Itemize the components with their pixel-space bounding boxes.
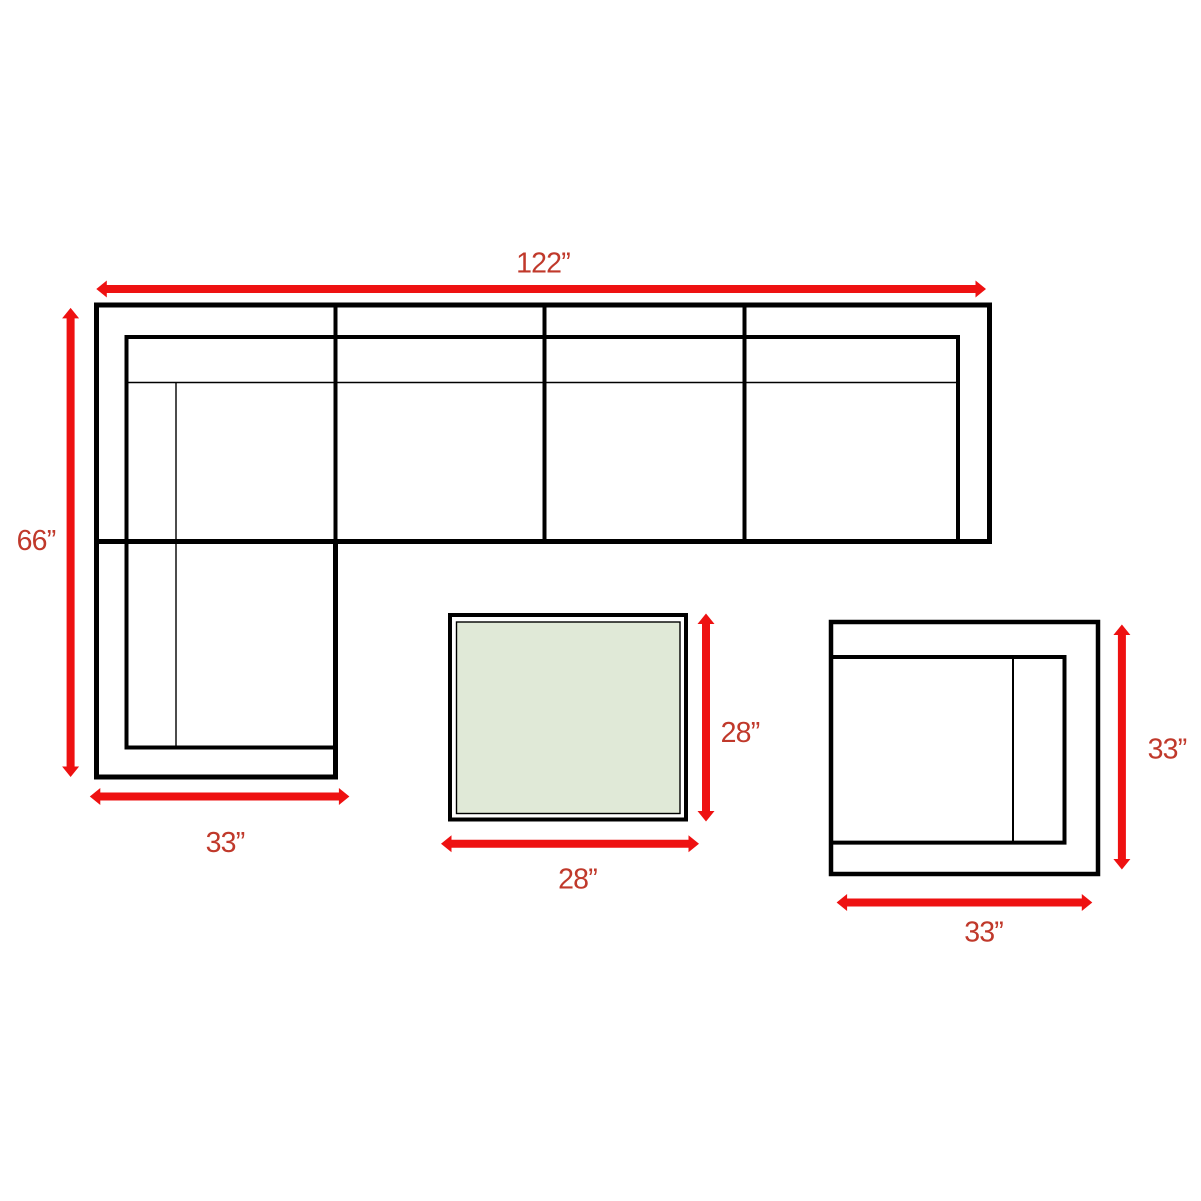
svg-text:28”: 28” bbox=[721, 717, 760, 749]
svg-text:33”: 33” bbox=[1148, 734, 1187, 766]
svg-text:28”: 28” bbox=[558, 864, 597, 896]
svg-text:33”: 33” bbox=[964, 917, 1003, 949]
svg-text:66”: 66” bbox=[17, 525, 56, 557]
svg-text:33”: 33” bbox=[206, 827, 245, 859]
svg-text:122”: 122” bbox=[516, 248, 570, 280]
